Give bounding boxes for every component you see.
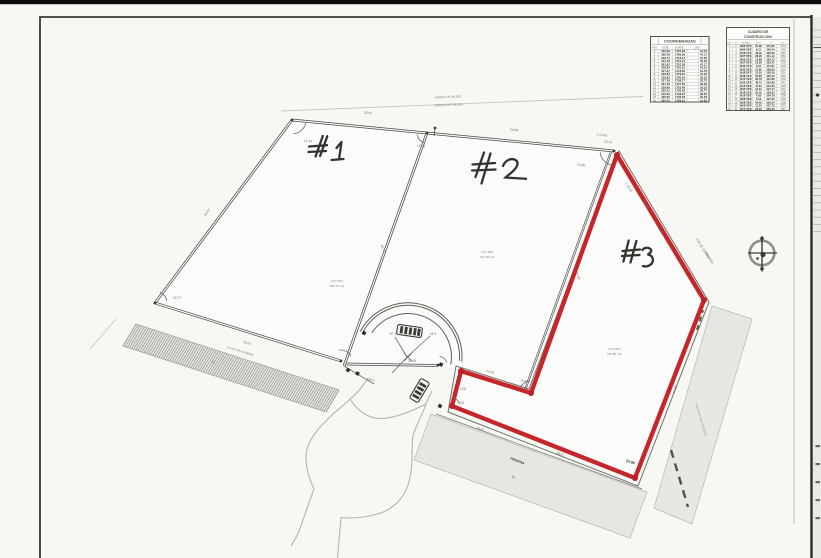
svg-text:23.20: 23.20 — [755, 107, 762, 111]
svg-text:16.77: 16.77 — [173, 296, 181, 300]
svg-text:R7.5: R7.5 — [390, 332, 397, 336]
svg-text:445.67 m2: 445.67 m2 — [330, 284, 345, 288]
svg-text:LOT 201: LOT 201 — [331, 279, 343, 283]
svg-text:29.08: 29.08 — [408, 359, 416, 363]
svg-text:1726.15: 1726.15 — [675, 98, 686, 102]
svg-text:LOT 203: LOT 203 — [608, 347, 620, 351]
svg-text:1747: 1747 — [780, 108, 786, 111]
svg-text:746.98 m2: 746.98 m2 — [607, 352, 622, 356]
svg-text:CONSTRUCCION: CONSTRUCCION — [744, 35, 772, 39]
svg-text:N71°40'E: N71°40'E — [740, 107, 752, 111]
svg-text:CUADRO DE: CUADRO DE — [748, 30, 769, 34]
svg-text:PTO: PTO — [652, 46, 657, 49]
svg-text:COORDENADAS: COORDENADAS — [664, 39, 696, 44]
svg-text:14.81: 14.81 — [700, 98, 707, 102]
svg-text:304.72: 304.72 — [661, 98, 670, 102]
svg-text:447.06 m2: 447.06 m2 — [480, 255, 495, 259]
svg-text:RUMBO: RUMBO — [742, 42, 750, 44]
svg-text:4.00: 4.00 — [460, 387, 467, 391]
svg-text:26.67: 26.67 — [364, 111, 373, 116]
svg-text:12.14: 12.14 — [304, 139, 313, 144]
svg-text:X,Y: X,Y — [781, 42, 785, 44]
svg-text:LOT 202: LOT 202 — [481, 250, 493, 254]
svg-text:304.23: 304.23 — [766, 107, 775, 111]
svg-text:EST: EST — [727, 42, 732, 44]
svg-text:4.00: 4.00 — [458, 401, 465, 405]
svg-text:24.9: 24.9 — [430, 332, 437, 336]
svg-text:DIST: DIST — [756, 42, 762, 44]
